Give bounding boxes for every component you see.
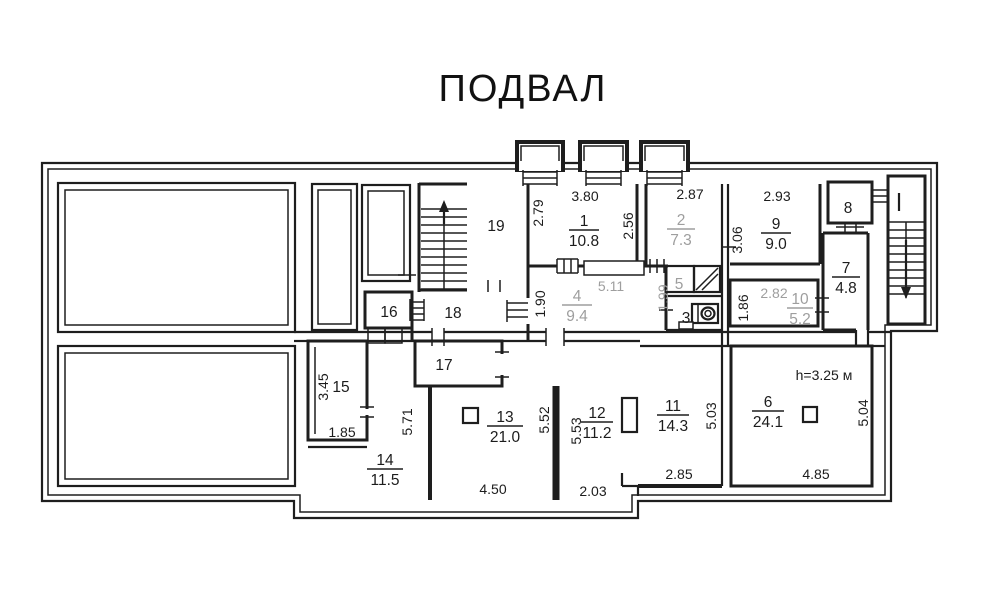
room-7-area: 4.8 <box>835 280 857 297</box>
room-4-area: 9.4 <box>566 308 588 325</box>
room-10-area: 5.2 <box>789 311 811 328</box>
door-hatch-icon <box>507 300 528 322</box>
dim-room2-top: 2.87 <box>676 186 703 202</box>
door-hatch-icon <box>872 190 888 202</box>
room-2-area: 7.3 <box>670 232 692 249</box>
room-6-area: 24.1 <box>753 414 783 431</box>
dim-room13-right: 5.52 <box>536 406 552 433</box>
dim-room6-right: 5.04 <box>855 399 871 426</box>
dim-corridor4-top: 5.11 <box>598 278 624 294</box>
window-bay-icon <box>641 142 688 186</box>
window-bays <box>517 142 688 186</box>
ceiling-height-note: h=3.25 м <box>796 367 853 383</box>
column <box>803 407 817 422</box>
shower-icon <box>694 266 720 292</box>
staircase-right <box>888 176 925 324</box>
window-bay-icon <box>517 142 563 186</box>
room-17-number: 17 <box>435 357 452 374</box>
dim-room13-bottom: 4.50 <box>479 481 506 497</box>
room-5-number: 5 <box>675 276 684 293</box>
dim-corridor4-right: 1.99 <box>655 284 671 311</box>
staircase-left <box>419 183 467 290</box>
door-hatch-icon <box>557 259 578 273</box>
room-13-area: 21.0 <box>490 429 521 446</box>
room-13-number: 13 <box>496 409 513 426</box>
dim-room9-left: 3.06 <box>729 226 745 253</box>
column <box>622 398 637 432</box>
room-4-number: 4 <box>573 288 582 305</box>
room-18-number: 18 <box>444 305 461 322</box>
duct-box <box>584 261 644 275</box>
dim-room1-left: 2.79 <box>530 199 546 226</box>
stair-up-arrow-icon <box>439 200 449 224</box>
dim-room11-right: 5.03 <box>703 402 719 429</box>
dim-room15-bottom: 1.85 <box>328 424 355 440</box>
dim-room11-bottom: 2.85 <box>665 466 692 482</box>
room-2-number: 2 <box>677 212 686 229</box>
room-11-number: 11 <box>665 398 681 415</box>
room-19-number: 19 <box>487 218 504 235</box>
room-1-number: 1 <box>580 213 589 230</box>
room-7-number: 7 <box>842 260 851 277</box>
dim-room9-top: 2.93 <box>763 188 790 204</box>
floor-plan-page: ПОДВАЛ <box>0 0 1000 606</box>
room-12-area: 11.2 <box>582 425 611 442</box>
room-14-area: 11.5 <box>370 472 399 489</box>
floor-plan-drawing: 1 10.8 2 7.3 9 9.0 8 7 4.8 10 5.2 4 9.4 <box>0 0 1000 606</box>
room-9-number: 9 <box>772 216 781 233</box>
room-6-number: 6 <box>764 394 773 411</box>
room-3-number: 3 <box>682 310 691 327</box>
room-11-area: 14.3 <box>658 418 688 435</box>
room-16-number: 16 <box>380 304 397 321</box>
dim-room12-bottom: 2.03 <box>579 483 606 499</box>
dim-room10-left: 1.86 <box>735 294 751 321</box>
dim-corridor4-left: 1.90 <box>532 290 548 317</box>
window-bay-icon <box>580 142 627 186</box>
room-12-number: 12 <box>588 405 605 422</box>
dim-room1-top: 3.80 <box>571 188 598 204</box>
dim-room12-left: 5.53 <box>568 417 584 444</box>
dim-room15-left: 3.45 <box>315 373 331 400</box>
room-10-number: 10 <box>791 291 809 308</box>
room-9-area: 9.0 <box>765 236 787 253</box>
dim-room10-top: 2.82 <box>760 285 787 301</box>
room-15-number: 15 <box>332 379 349 396</box>
column <box>463 408 478 423</box>
room-8-number: 8 <box>844 200 853 217</box>
room-1-area: 10.8 <box>569 233 599 250</box>
dim-corridor: 5.71 <box>399 408 415 435</box>
dim-room6-bottom: 4.85 <box>802 466 829 482</box>
dim-room1-right: 2.56 <box>620 212 636 239</box>
room-14-number: 14 <box>376 452 394 469</box>
